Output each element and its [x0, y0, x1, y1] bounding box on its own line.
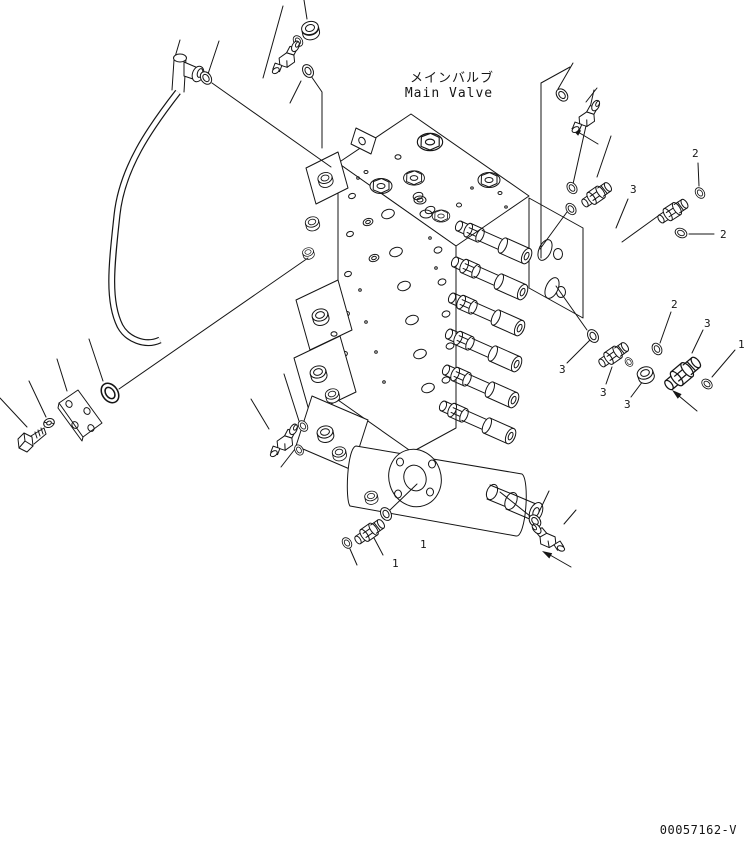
- union-fitting: [655, 196, 690, 226]
- title-japanese: メインバルブ: [410, 70, 494, 86]
- o-ring: [693, 186, 707, 200]
- union-fitting: [596, 340, 631, 370]
- callout-number: 2: [671, 298, 678, 311]
- mounting-plate: [58, 390, 102, 441]
- callout-number: 1: [420, 538, 427, 551]
- o-ring: [300, 63, 315, 80]
- direction-arrow: [542, 551, 571, 567]
- direction-arrow: [672, 390, 697, 411]
- o-ring: [674, 226, 689, 239]
- o-ring: [340, 536, 354, 550]
- hydraulic-hose: [112, 92, 178, 343]
- top-right-parts: [554, 87, 604, 134]
- hose-assembly: [112, 54, 214, 343]
- callout-number: 3: [704, 317, 711, 330]
- callout-number: 1: [738, 338, 744, 351]
- callout-number: 3: [630, 183, 637, 196]
- o-ring: [554, 87, 570, 104]
- callout-number: 2: [720, 228, 727, 241]
- callout-number: 3: [559, 363, 566, 376]
- elbow-fitting: [530, 519, 566, 555]
- parts-diagram-page: 23223133311 メインバルブ Main Valve 00057162-V: [0, 0, 744, 844]
- callout-number: 3: [600, 386, 607, 399]
- elbow-fitting: [268, 39, 304, 75]
- o-ring: [565, 180, 579, 195]
- o-ring-large: [98, 380, 123, 406]
- elbow-fitting: [569, 99, 604, 134]
- o-ring: [650, 341, 664, 356]
- right-lower-parts: [585, 328, 714, 394]
- o-ring: [623, 356, 634, 368]
- valve-end-block: [529, 198, 583, 318]
- bottom-right-parts: [527, 513, 566, 556]
- hex-cap: [635, 365, 656, 386]
- union-fitting: [579, 180, 614, 210]
- union-fitting: [661, 354, 704, 394]
- hex-nut: [300, 20, 320, 40]
- hex-bolt: [18, 428, 46, 452]
- callout-number: 2: [692, 147, 699, 160]
- bottom-center-parts: [340, 506, 394, 551]
- o-ring: [564, 201, 578, 216]
- main-valve-body: [294, 114, 583, 536]
- parts-diagram: 23223133311 メインバルブ Main Valve 00057162-V: [0, 0, 744, 844]
- callout-number: 3: [624, 398, 631, 411]
- top-center-parts: [268, 20, 320, 80]
- o-ring: [700, 377, 714, 391]
- washer: [42, 417, 56, 429]
- callout-number: 1: [392, 557, 399, 570]
- title-english: Main Valve: [405, 86, 493, 101]
- union-fitting: [352, 517, 387, 547]
- drawing-number: 00057162-V: [660, 823, 737, 837]
